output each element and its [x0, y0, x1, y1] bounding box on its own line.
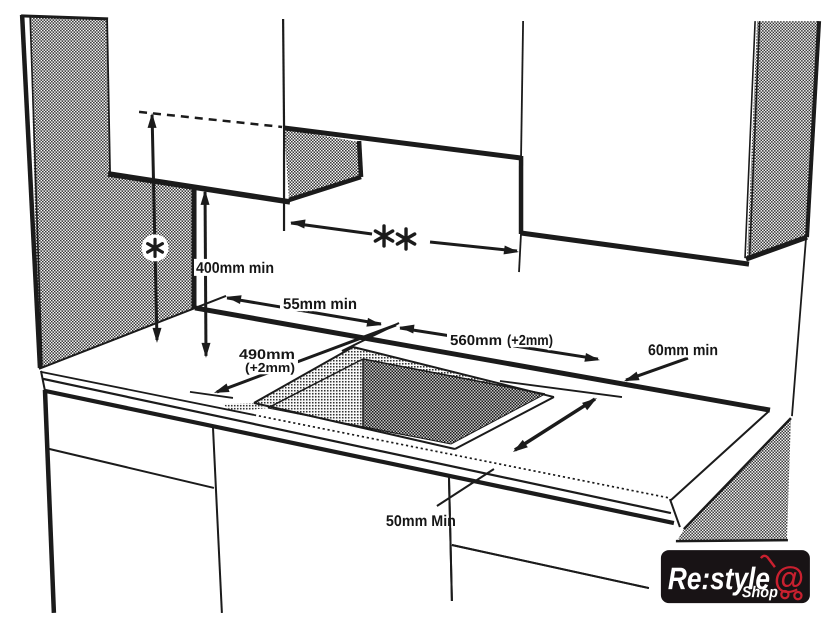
svg-text:(+2mm): (+2mm)	[245, 360, 295, 375]
svg-text:55mm min: 55mm min	[283, 296, 357, 313]
svg-text:@: @	[774, 560, 804, 595]
svg-text:Shop: Shop	[742, 584, 778, 601]
svg-text:50mm Min: 50mm Min	[386, 513, 456, 530]
svg-text:560mm: 560mm	[450, 333, 502, 349]
svg-text:400mm min: 400mm min	[196, 260, 274, 277]
svg-text:60mm min: 60mm min	[648, 342, 718, 359]
svg-text:(+2mm): (+2mm)	[507, 333, 553, 349]
